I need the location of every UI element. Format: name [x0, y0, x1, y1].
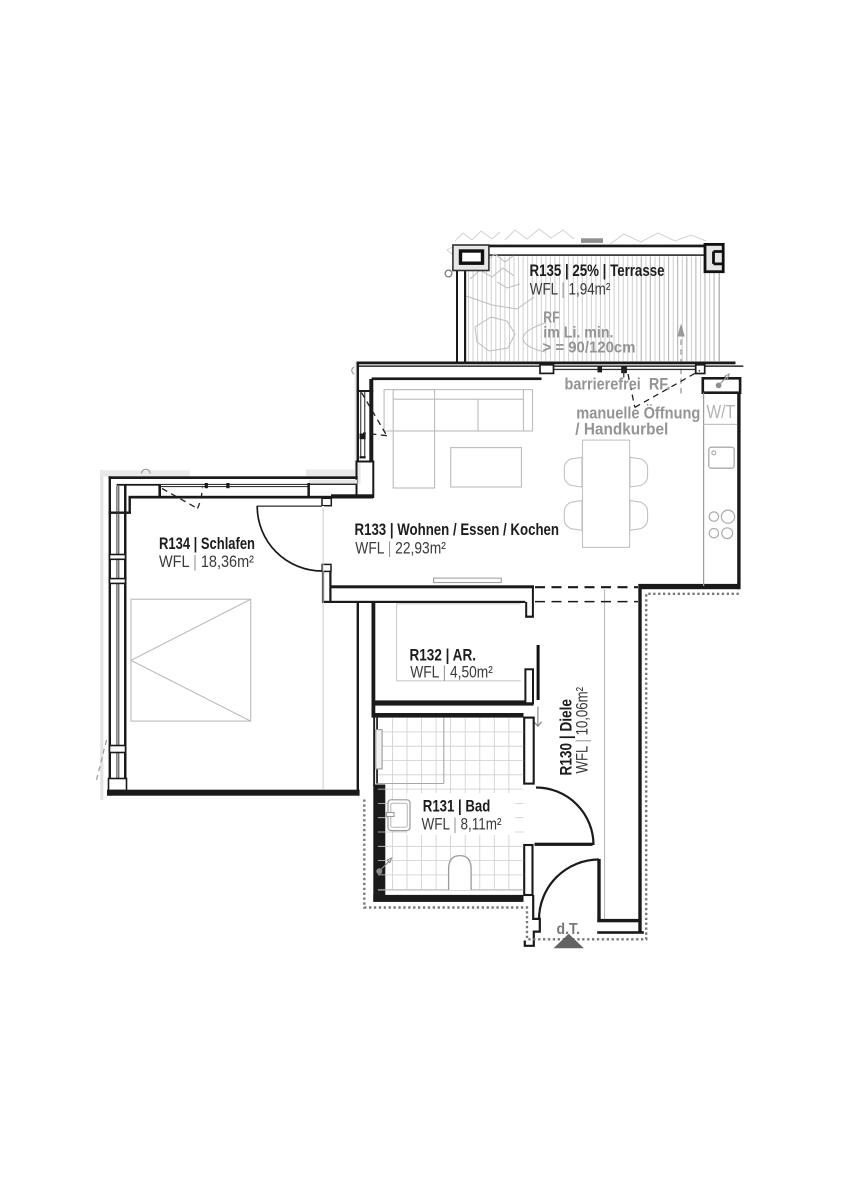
svg-text:R133 | Wohnen / Essen / Kochen: R133 | Wohnen / Essen / Kochen	[355, 521, 560, 539]
svg-text:WFL | 8,11m²: WFL | 8,11m²	[422, 816, 502, 834]
svg-text:WFL | 4,50m²: WFL | 4,50m²	[410, 663, 493, 681]
svg-text:WFL | 18,36m²: WFL | 18,36m²	[159, 553, 254, 571]
svg-text:WFL | 1,94m²: WFL | 1,94m²	[530, 281, 611, 299]
svg-text:barrierefrei RF.: barrierefrei RF.	[565, 376, 671, 394]
svg-text:WFL | 22,93m²: WFL | 22,93m²	[355, 539, 446, 557]
svg-text:R132 | AR.: R132 | AR.	[410, 646, 477, 664]
svg-text:/ Handkurbel: / Handkurbel	[575, 420, 668, 439]
svg-text:W/T: W/T	[707, 402, 736, 422]
svg-text:R134 | Schlafen: R134 | Schlafen	[159, 535, 255, 553]
svg-text:WFL | 10,06m²: WFL | 10,06m²	[574, 687, 592, 774]
svg-text:R131 | Bad: R131 | Bad	[423, 798, 491, 816]
svg-text:R135 | 25% | Terrasse: R135 | 25% | Terrasse	[530, 262, 665, 280]
svg-text:> = 90/120cm: > = 90/120cm	[543, 339, 636, 356]
